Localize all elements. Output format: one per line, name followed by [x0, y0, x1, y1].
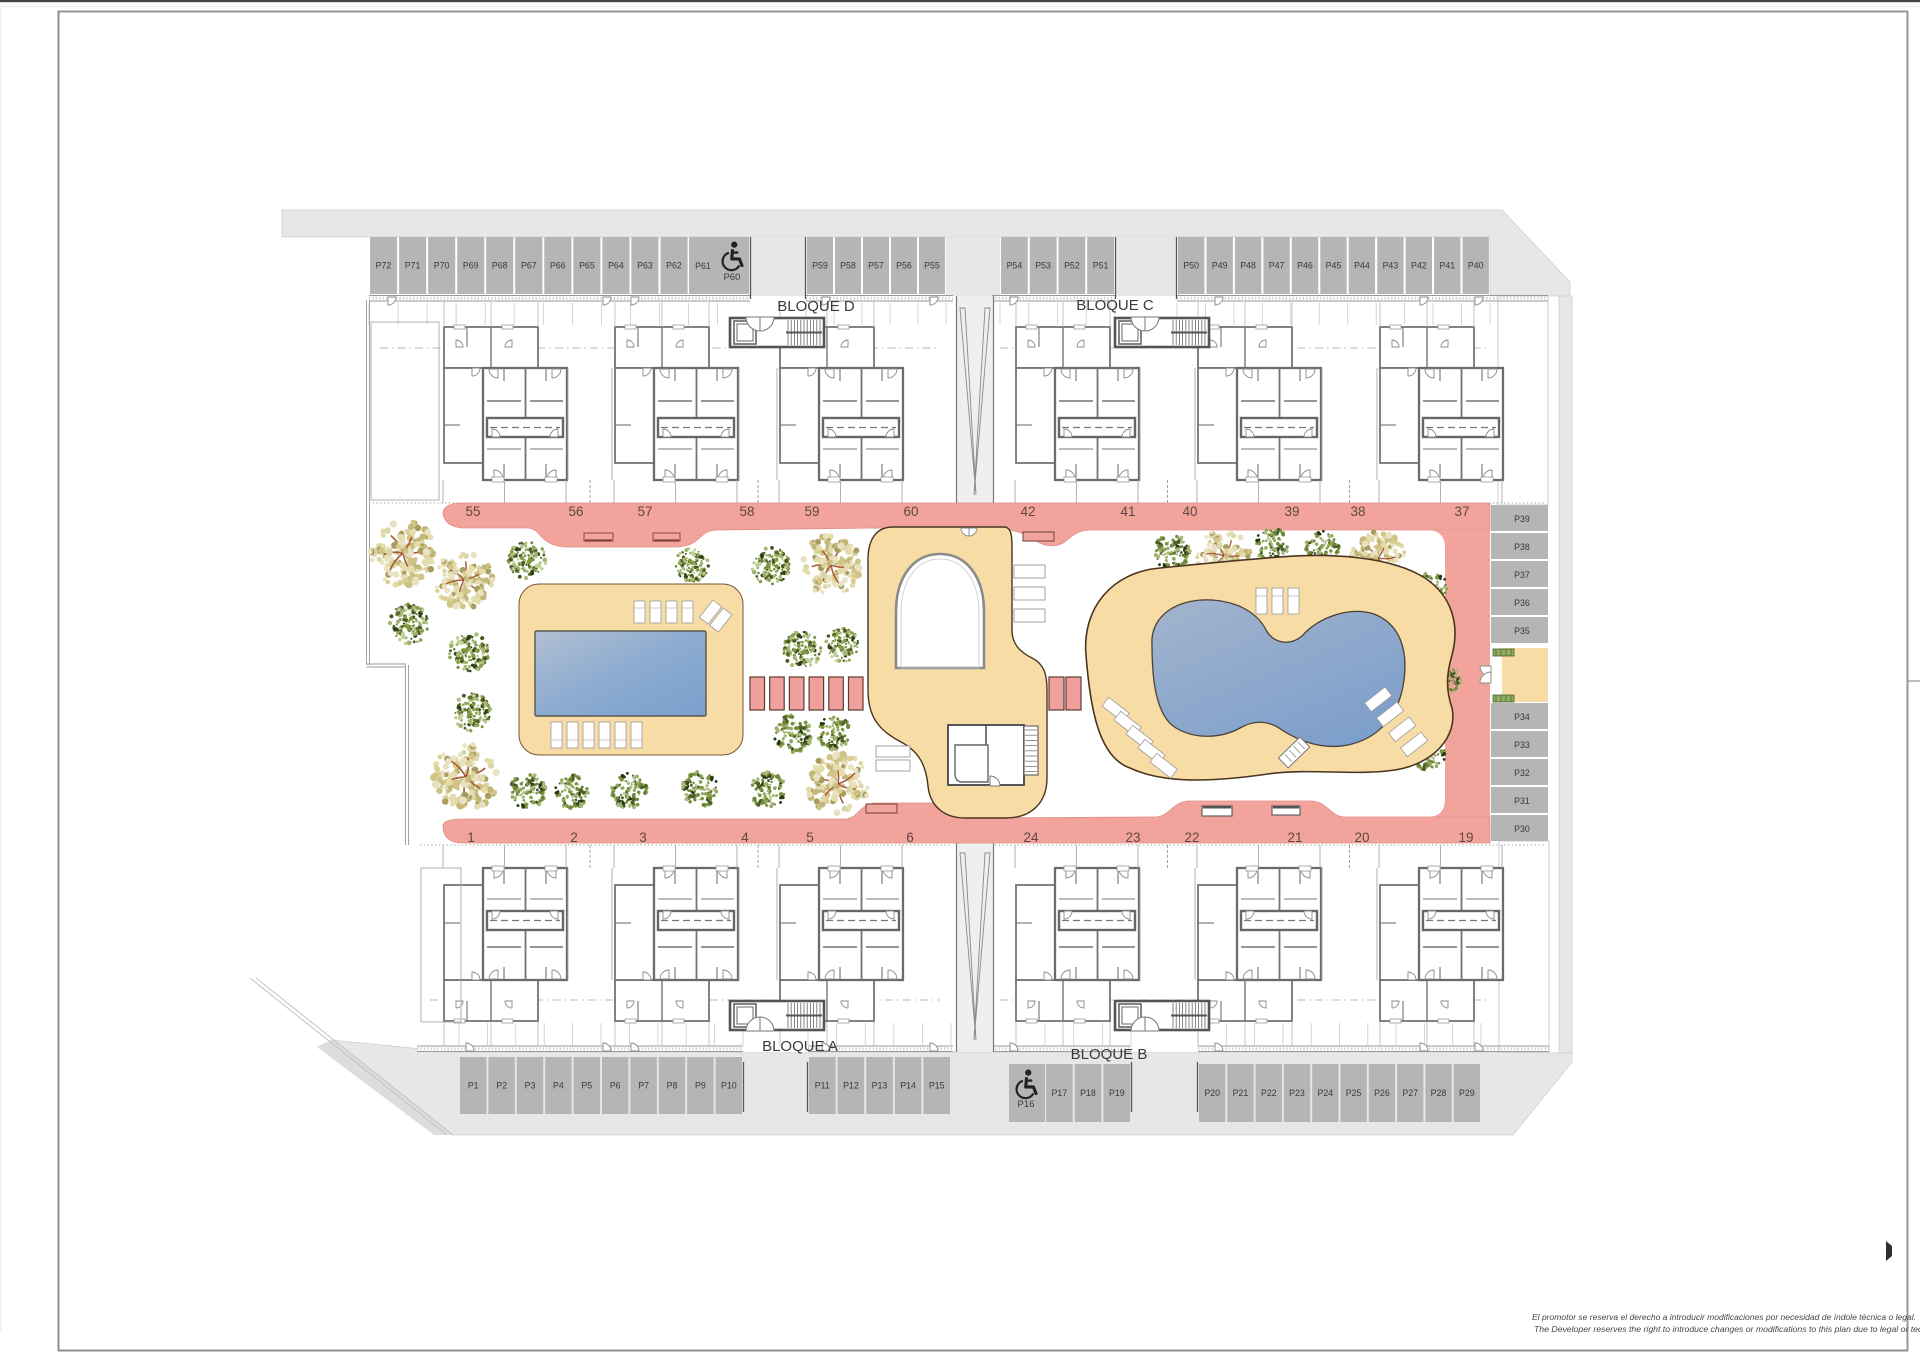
svg-text:42: 42: [1020, 504, 1035, 519]
svg-text:P23: P23: [1289, 1088, 1305, 1098]
svg-text:P55: P55: [924, 261, 940, 271]
svg-text:23: 23: [1125, 830, 1140, 845]
svg-text:P57: P57: [868, 261, 884, 271]
svg-text:P7: P7: [638, 1081, 649, 1091]
svg-text:P17: P17: [1051, 1088, 1067, 1098]
svg-text:P60: P60: [724, 272, 741, 283]
svg-text:P4: P4: [553, 1081, 564, 1091]
svg-text:2: 2: [570, 830, 578, 845]
svg-text:P27: P27: [1402, 1088, 1418, 1098]
svg-text:P9: P9: [695, 1081, 706, 1091]
svg-text:1: 1: [467, 830, 475, 845]
svg-text:58: 58: [739, 504, 754, 519]
svg-text:41: 41: [1120, 504, 1135, 519]
svg-text:P44: P44: [1354, 261, 1370, 271]
svg-text:P6: P6: [610, 1081, 621, 1091]
svg-text:56: 56: [568, 504, 583, 519]
svg-text:P72: P72: [376, 261, 392, 271]
svg-text:P71: P71: [405, 261, 421, 271]
svg-text:P42: P42: [1411, 261, 1427, 271]
svg-text:P19: P19: [1109, 1088, 1125, 1098]
svg-text:P14: P14: [900, 1081, 916, 1091]
svg-text:The Developer reserves the rig: The Developer reserves the right to intr…: [1534, 1324, 1920, 1334]
svg-text:P51: P51: [1093, 261, 1109, 271]
svg-text:P22: P22: [1261, 1088, 1277, 1098]
svg-text:P45: P45: [1326, 261, 1342, 271]
svg-text:BLOQUE C: BLOQUE C: [1076, 297, 1154, 314]
svg-text:P28: P28: [1431, 1088, 1447, 1098]
svg-text:P70: P70: [434, 261, 450, 271]
svg-text:BLOQUE B: BLOQUE B: [1071, 1046, 1148, 1063]
svg-text:P34: P34: [1514, 712, 1530, 722]
svg-text:P54: P54: [1007, 261, 1023, 271]
svg-text:P32: P32: [1514, 768, 1530, 778]
svg-text:P68: P68: [492, 261, 508, 271]
svg-text:P36: P36: [1514, 598, 1530, 608]
svg-text:P16: P16: [1018, 1099, 1035, 1110]
svg-text:P59: P59: [812, 261, 828, 271]
svg-text:P65: P65: [579, 261, 595, 271]
svg-text:P50: P50: [1183, 261, 1199, 271]
svg-text:P3: P3: [525, 1081, 536, 1091]
svg-text:P49: P49: [1212, 261, 1228, 271]
svg-text:60: 60: [903, 504, 918, 519]
svg-text:P2: P2: [496, 1081, 507, 1091]
svg-text:P43: P43: [1383, 261, 1399, 271]
svg-text:P58: P58: [840, 261, 856, 271]
svg-text:P13: P13: [872, 1081, 888, 1091]
svg-text:P64: P64: [608, 261, 624, 271]
svg-text:P52: P52: [1064, 261, 1080, 271]
svg-text:BLOQUE D: BLOQUE D: [777, 298, 855, 315]
svg-text:55: 55: [465, 504, 480, 519]
svg-text:P66: P66: [550, 261, 566, 271]
svg-text:P48: P48: [1240, 261, 1256, 271]
svg-text:P12: P12: [843, 1081, 859, 1091]
svg-text:P40: P40: [1468, 261, 1484, 271]
svg-text:P63: P63: [637, 261, 653, 271]
svg-text:P33: P33: [1514, 740, 1530, 750]
svg-text:4: 4: [741, 830, 749, 845]
svg-text:6: 6: [906, 830, 914, 845]
svg-text:P26: P26: [1374, 1088, 1390, 1098]
svg-text:P21: P21: [1233, 1088, 1249, 1098]
svg-text:24: 24: [1023, 830, 1039, 845]
svg-text:P56: P56: [896, 261, 912, 271]
svg-text:P11: P11: [815, 1081, 830, 1091]
svg-text:P47: P47: [1269, 261, 1285, 271]
svg-text:El promotor se reserva el dere: El promotor se reserva el derecho a intr…: [1532, 1312, 1916, 1322]
svg-text:P46: P46: [1297, 261, 1313, 271]
svg-text:P61: P61: [695, 261, 711, 271]
svg-text:P62: P62: [666, 261, 682, 271]
svg-text:P39: P39: [1514, 514, 1530, 524]
svg-text:3: 3: [639, 830, 647, 845]
svg-text:P38: P38: [1514, 542, 1530, 552]
svg-text:P53: P53: [1035, 261, 1051, 271]
svg-text:P69: P69: [463, 261, 479, 271]
svg-text:P30: P30: [1514, 824, 1530, 834]
svg-text:20: 20: [1354, 830, 1369, 845]
svg-text:P35: P35: [1514, 626, 1530, 636]
svg-text:P24: P24: [1317, 1088, 1333, 1098]
svg-text:P37: P37: [1514, 570, 1530, 580]
svg-text:P67: P67: [521, 261, 537, 271]
svg-text:P8: P8: [667, 1081, 678, 1091]
svg-text:21: 21: [1287, 830, 1302, 845]
svg-text:P25: P25: [1346, 1088, 1362, 1098]
svg-text:P15: P15: [929, 1081, 945, 1091]
svg-text:22: 22: [1184, 830, 1199, 845]
svg-text:P18: P18: [1080, 1088, 1096, 1098]
svg-text:37: 37: [1454, 504, 1469, 519]
svg-text:59: 59: [804, 504, 819, 519]
svg-text:19: 19: [1458, 830, 1473, 845]
svg-text:P5: P5: [581, 1081, 592, 1091]
svg-text:P31: P31: [1514, 796, 1530, 806]
svg-text:57: 57: [637, 504, 652, 519]
svg-text:P41: P41: [1439, 261, 1455, 271]
svg-text:39: 39: [1284, 504, 1299, 519]
svg-text:P29: P29: [1459, 1088, 1475, 1098]
svg-text:BLOQUE A: BLOQUE A: [762, 1038, 838, 1055]
svg-text:P20: P20: [1204, 1088, 1220, 1098]
svg-text:38: 38: [1350, 504, 1365, 519]
svg-text:P1: P1: [468, 1081, 479, 1091]
svg-text:5: 5: [806, 830, 814, 845]
svg-text:P10: P10: [721, 1081, 737, 1091]
svg-text:40: 40: [1182, 504, 1197, 519]
